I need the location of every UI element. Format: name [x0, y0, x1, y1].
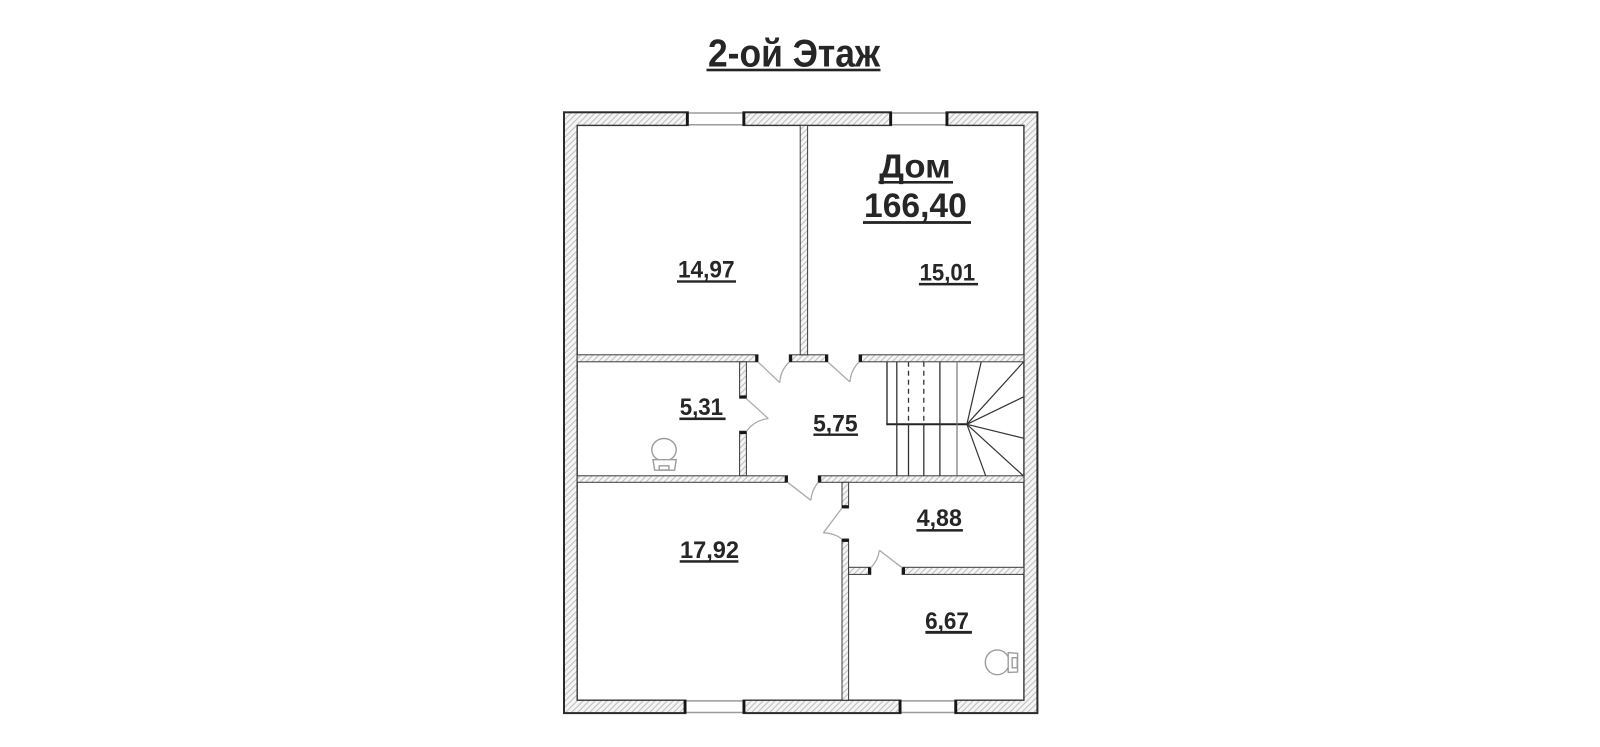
svg-text:14,97: 14,97: [678, 257, 735, 284]
svg-text:17,92: 17,92: [680, 537, 739, 564]
svg-text:4,88: 4,88: [917, 505, 962, 532]
svg-text:5,31: 5,31: [680, 394, 723, 421]
svg-text:Дом: Дом: [879, 148, 951, 185]
svg-text:166,40: 166,40: [864, 187, 967, 225]
svg-text:5,75: 5,75: [813, 411, 858, 438]
svg-text:15,01: 15,01: [920, 260, 976, 287]
